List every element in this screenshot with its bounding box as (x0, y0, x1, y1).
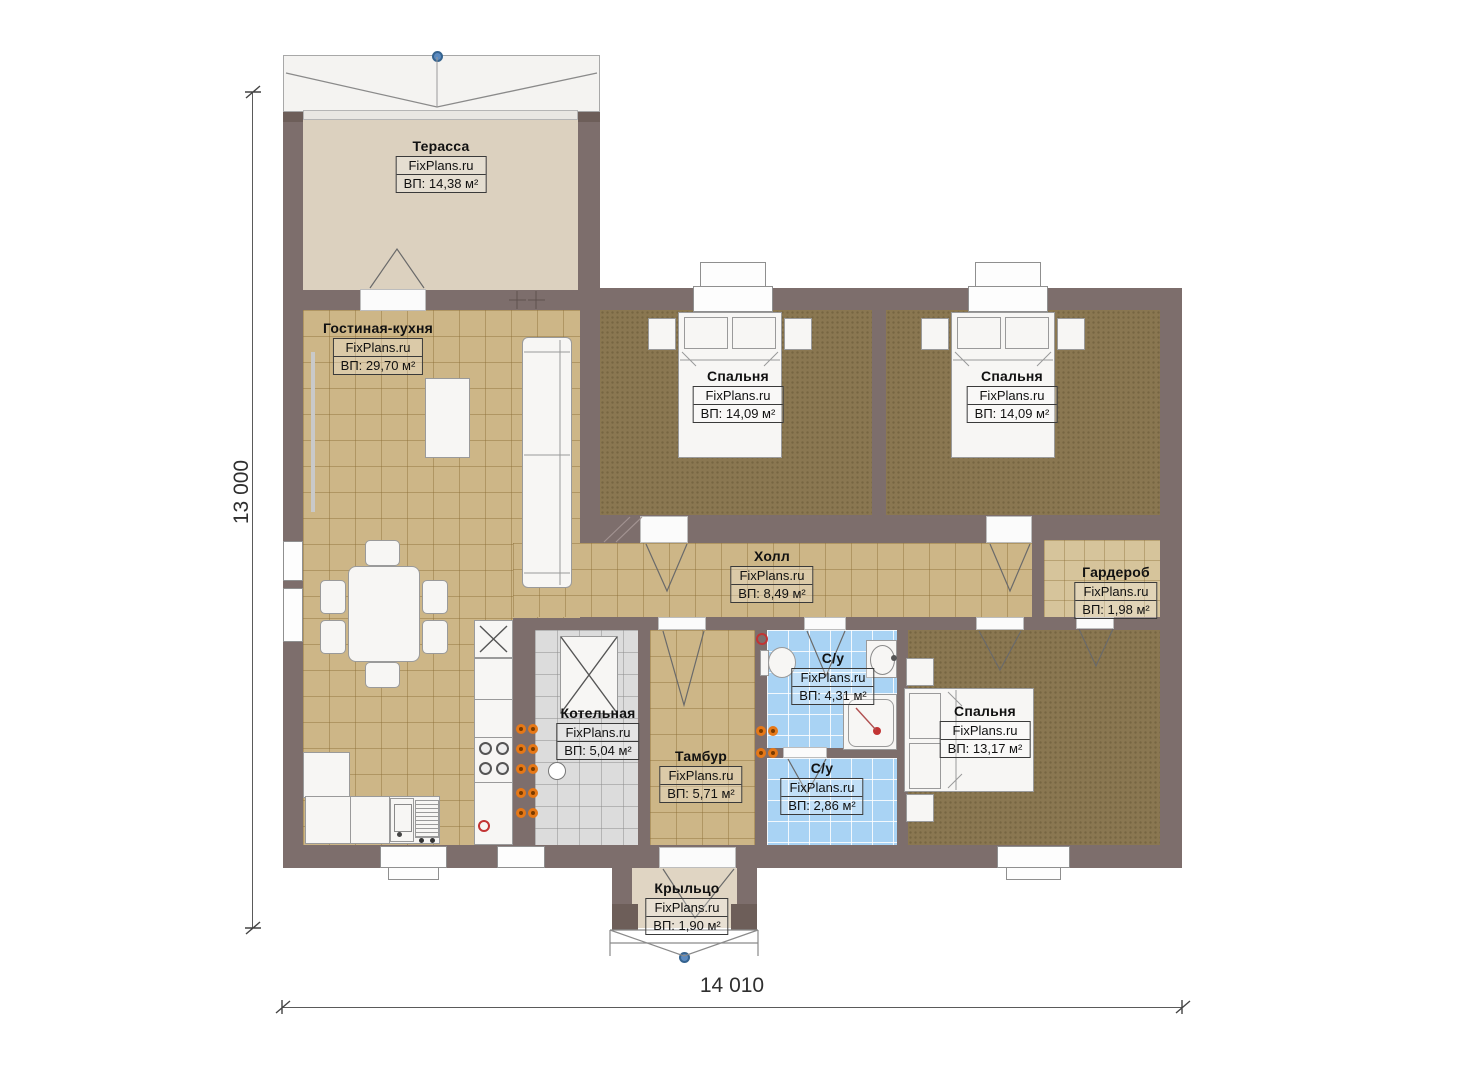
room-area: ВП: 5,71 м² (660, 785, 741, 802)
door-swing-bedroom3 (979, 631, 1021, 670)
label-porch: Крыльцо FixPlans.ruВП: 1,90 м² (645, 880, 728, 935)
room-area: ВП: 1,90 м² (646, 917, 727, 934)
dimension-width-label: 14 010 (662, 974, 802, 998)
room-area: ВП: 8,49 м² (731, 585, 812, 602)
room-name: С/у (780, 760, 863, 776)
watermark: FixPlans.ru (731, 567, 812, 585)
room-name: Гардероб (1074, 564, 1157, 580)
plan-annotations (0, 0, 1474, 1080)
watermark: FixPlans.ru (781, 779, 862, 797)
label-boiler: Котельная FixPlans.ruВП: 5,04 м² (556, 705, 639, 760)
wall-hatch (604, 517, 642, 542)
watermark: FixPlans.ru (334, 339, 423, 357)
room-name: Крыльцо (645, 880, 728, 896)
wall-cross-marks (509, 291, 545, 309)
room-name: Спальня (940, 703, 1031, 719)
watermark: FixPlans.ru (792, 669, 873, 687)
label-bedroom1: Спальня FixPlans.ruВП: 14,09 м² (693, 368, 784, 423)
watermark: FixPlans.ru (1075, 583, 1156, 601)
shower-hose (856, 708, 876, 730)
room-name: С/у (791, 650, 874, 666)
door-swing-bedroom1 (646, 544, 687, 591)
boiler-x-mark (561, 637, 617, 713)
room-area: ВП: 14,09 м² (968, 405, 1057, 422)
room-area: ВП: 1,98 м² (1075, 601, 1156, 618)
watermark: FixPlans.ru (968, 387, 1057, 405)
watermark: FixPlans.ru (660, 767, 741, 785)
door-swing-vestibule (663, 631, 704, 705)
label-bath1: С/у FixPlans.ruВП: 4,31 м² (791, 650, 874, 705)
door-swing-wardrobe (1079, 629, 1113, 666)
label-bedroom3: Спальня FixPlans.ruВП: 13,17 м² (940, 703, 1031, 758)
room-area: ВП: 29,70 м² (334, 357, 423, 374)
cabinet-x-mark (480, 626, 507, 652)
room-area: ВП: 14,38 м² (397, 175, 486, 192)
label-living: Гостиная-кухня FixPlans.ruВП: 29,70 м² (323, 320, 433, 375)
room-area: ВП: 5,04 м² (557, 742, 638, 759)
label-bedroom2: Спальня FixPlans.ruВП: 14,09 м² (967, 368, 1058, 423)
room-area: ВП: 14,09 м² (694, 405, 783, 422)
room-name: Тамбур (659, 748, 742, 764)
room-name: Терасса (396, 138, 487, 154)
room-name: Гостиная-кухня (323, 320, 433, 336)
door-swing-terrace (370, 249, 424, 288)
label-bath2: С/у FixPlans.ruВП: 2,86 м² (780, 760, 863, 815)
room-name: Спальня (693, 368, 784, 384)
room-area: ВП: 2,86 м² (781, 797, 862, 814)
label-hall: Холл FixPlans.ruВП: 8,49 м² (730, 548, 813, 603)
watermark: FixPlans.ru (694, 387, 783, 405)
label-wardrobe: Гардероб FixPlans.ruВП: 1,98 м² (1074, 564, 1157, 619)
watermark: FixPlans.ru (941, 722, 1030, 740)
door-swing-bedroom2 (990, 544, 1030, 591)
dimension-ticks (245, 86, 1190, 1014)
sofa-seams (524, 340, 570, 585)
room-name: Спальня (967, 368, 1058, 384)
room-area: ВП: 4,31 м² (792, 687, 873, 704)
label-vestibule: Тамбур FixPlans.ruВП: 5,71 м² (659, 748, 742, 803)
watermark: FixPlans.ru (397, 157, 486, 175)
label-terrace: Терасса FixPlans.ruВП: 14,38 м² (396, 138, 487, 193)
dimension-height-label: 13 000 (230, 422, 254, 562)
watermark: FixPlans.ru (557, 724, 638, 742)
room-name: Котельная (556, 705, 639, 721)
room-area: ВП: 13,17 м² (941, 740, 1030, 757)
floor-plan-canvas: 13 000 14 010 (0, 0, 1474, 1080)
awning-lines (286, 73, 597, 107)
watermark: FixPlans.ru (646, 899, 727, 917)
room-name: Холл (730, 548, 813, 564)
